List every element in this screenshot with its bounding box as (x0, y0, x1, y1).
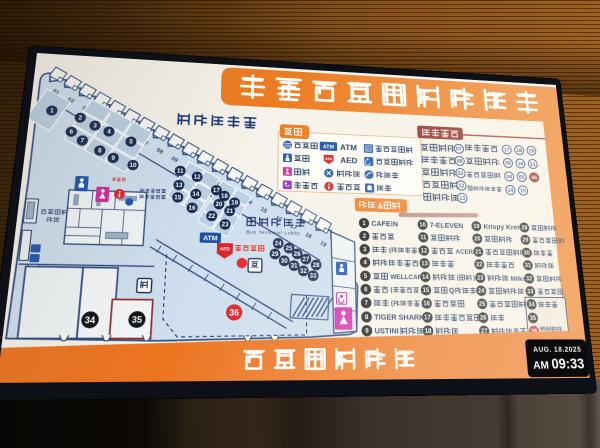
svg-text:AUG. 18.2025: AUG. 18.2025 (533, 347, 582, 354)
